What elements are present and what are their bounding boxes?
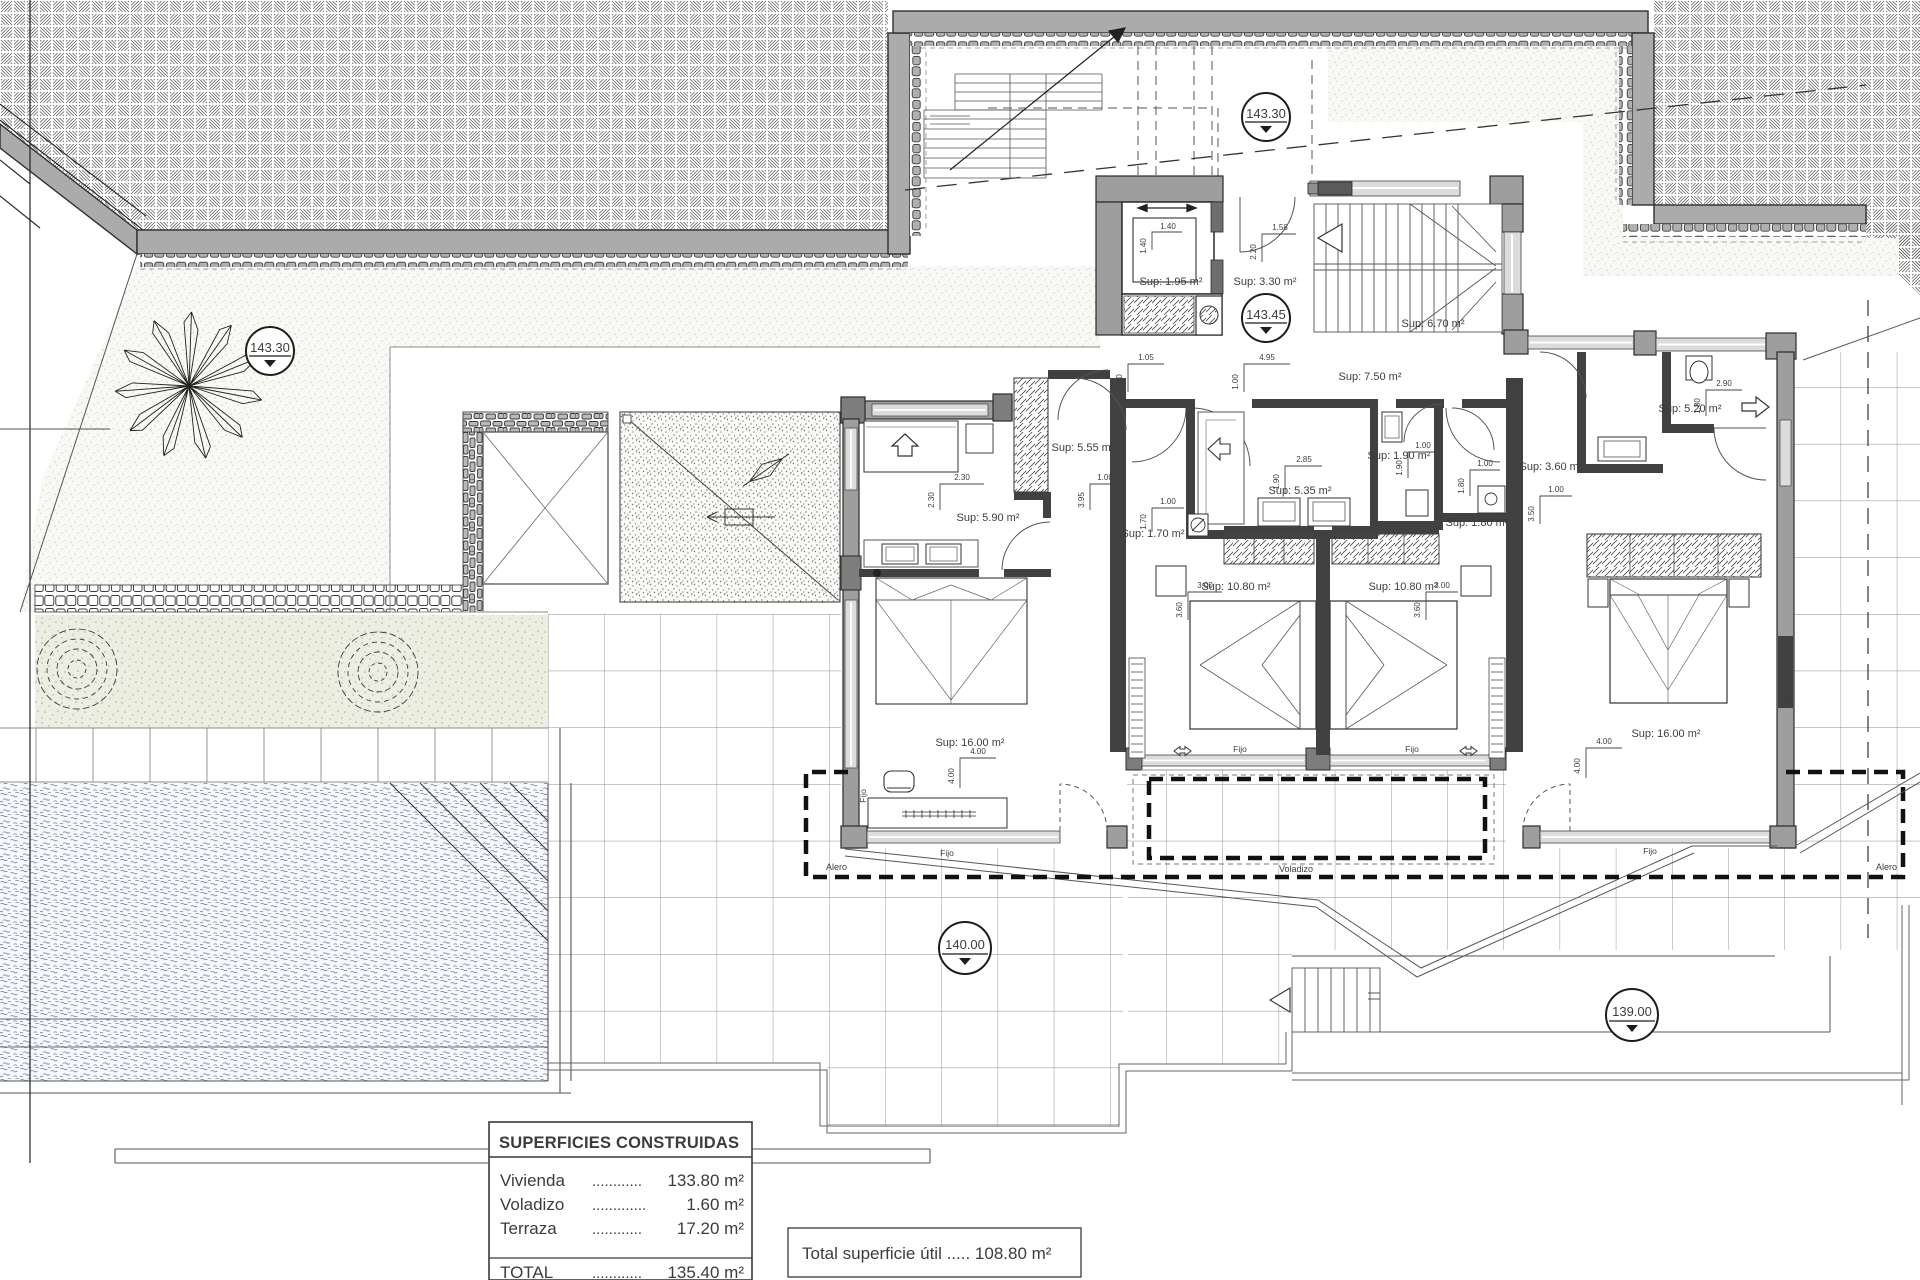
svg-text:Fijo: Fijo: [1233, 744, 1247, 754]
svg-text:1.70: 1.70: [1139, 514, 1148, 530]
svg-text:1.00: 1.00: [1231, 374, 1240, 390]
svg-text:133.80 m²: 133.80 m²: [667, 1171, 744, 1190]
svg-text:Fijo: Fijo: [1643, 846, 1657, 856]
svg-text:1.30: 1.30: [1115, 374, 1124, 390]
svg-text:2.85: 2.85: [1296, 455, 1312, 464]
svg-text:139.00: 139.00: [1612, 1004, 1652, 1019]
svg-text:1.40: 1.40: [1139, 238, 1148, 254]
svg-text:Sup: 5.55 m²: Sup: 5.55 m²: [1052, 442, 1115, 454]
svg-text:Sup: 10.80 m²: Sup: 10.80 m²: [1368, 581, 1437, 593]
svg-text:............: ............: [592, 1173, 642, 1190]
svg-text:4.00: 4.00: [970, 747, 986, 756]
svg-text:Vivienda: Vivienda: [500, 1171, 565, 1190]
svg-text:3.00: 3.00: [1197, 581, 1213, 590]
svg-text:Fijo: Fijo: [940, 848, 954, 858]
svg-text:4.00: 4.00: [947, 768, 956, 784]
svg-text:1.00: 1.00: [1477, 459, 1493, 468]
svg-text:Fijo: Fijo: [1782, 693, 1792, 707]
svg-text:Sup: 5.20 m²: Sup: 5.20 m²: [1659, 403, 1722, 415]
svg-text:1.00: 1.00: [1160, 497, 1176, 506]
svg-text:TOTAL: TOTAL: [500, 1263, 553, 1280]
svg-text:............: ............: [592, 1221, 642, 1238]
svg-text:143.30: 143.30: [250, 340, 290, 355]
svg-text:3.60: 3.60: [1175, 602, 1184, 618]
svg-text:1.90: 1.90: [1272, 474, 1281, 490]
svg-text:Sup: 1.80 m²: Sup: 1.80 m²: [1446, 517, 1509, 529]
svg-text:Sup: 16.00 m²: Sup: 16.00 m²: [1631, 728, 1700, 740]
svg-text:Alero: Alero: [826, 862, 847, 872]
svg-text:1.40: 1.40: [1160, 222, 1176, 231]
svg-text:4.00: 4.00: [1596, 737, 1612, 746]
svg-text:3.50: 3.50: [1527, 506, 1536, 522]
svg-text:1.80: 1.80: [1457, 478, 1466, 494]
svg-text:Voladizo: Voladizo: [500, 1195, 564, 1214]
svg-text:4.95: 4.95: [1259, 353, 1275, 362]
svg-text:17.20 m²: 17.20 m²: [677, 1219, 744, 1238]
svg-text:2.30: 2.30: [954, 473, 970, 482]
svg-text:Sup: 1.70 m²: Sup: 1.70 m²: [1122, 528, 1185, 540]
svg-text:1.00: 1.00: [1415, 441, 1431, 450]
svg-text:Terraza: Terraza: [500, 1219, 557, 1238]
svg-text:Voladizo: Voladizo: [1279, 864, 1313, 874]
svg-text:Sup: 3.30 m²: Sup: 3.30 m²: [1234, 276, 1297, 288]
svg-text:SUPERFICIES CONSTRUIDAS: SUPERFICIES CONSTRUIDAS: [499, 1134, 739, 1152]
svg-text:Sup: 7.50 m²: Sup: 7.50 m²: [1339, 371, 1402, 383]
svg-text:140.00: 140.00: [945, 937, 985, 952]
svg-text:Sup: 6.70 m²: Sup: 6.70 m²: [1402, 318, 1465, 330]
svg-text:1.80: 1.80: [1693, 398, 1702, 414]
svg-text:.............: .............: [592, 1197, 646, 1214]
svg-text:............: ............: [592, 1265, 642, 1280]
svg-text:2.30: 2.30: [927, 492, 936, 508]
svg-text:1.90: 1.90: [1395, 460, 1404, 476]
svg-text:Total superficie útil ..... 1: Total superficie útil ..... 108.80 m²: [802, 1244, 1052, 1263]
svg-text:1.60 m²: 1.60 m²: [686, 1195, 744, 1214]
svg-text:3.95: 3.95: [1077, 492, 1086, 508]
svg-text:4.00: 4.00: [1573, 758, 1582, 774]
svg-text:2.20: 2.20: [1249, 244, 1258, 260]
svg-text:143.45: 143.45: [1246, 307, 1286, 322]
svg-text:Alero: Alero: [1876, 862, 1897, 872]
svg-text:Fijo: Fijo: [1405, 744, 1419, 754]
svg-text:2.90: 2.90: [1716, 379, 1732, 388]
svg-text:Sup: 3.60 m²: Sup: 3.60 m²: [1520, 461, 1583, 473]
svg-text:135.40 m²: 135.40 m²: [667, 1263, 744, 1280]
svg-text:1.00: 1.00: [1548, 485, 1564, 494]
svg-text:3.00: 3.00: [1434, 581, 1450, 590]
svg-text:143.30: 143.30: [1246, 106, 1286, 121]
svg-text:1.05: 1.05: [1138, 353, 1154, 362]
svg-text:3.60: 3.60: [1413, 602, 1422, 618]
svg-text:1.58: 1.58: [1272, 223, 1288, 232]
svg-text:1.00: 1.00: [1097, 473, 1113, 482]
svg-text:Sup: 1.95 m²: Sup: 1.95 m²: [1140, 276, 1203, 288]
svg-text:Fijo: Fijo: [858, 789, 868, 803]
svg-text:Sup: 5.90 m²: Sup: 5.90 m²: [957, 512, 1020, 524]
